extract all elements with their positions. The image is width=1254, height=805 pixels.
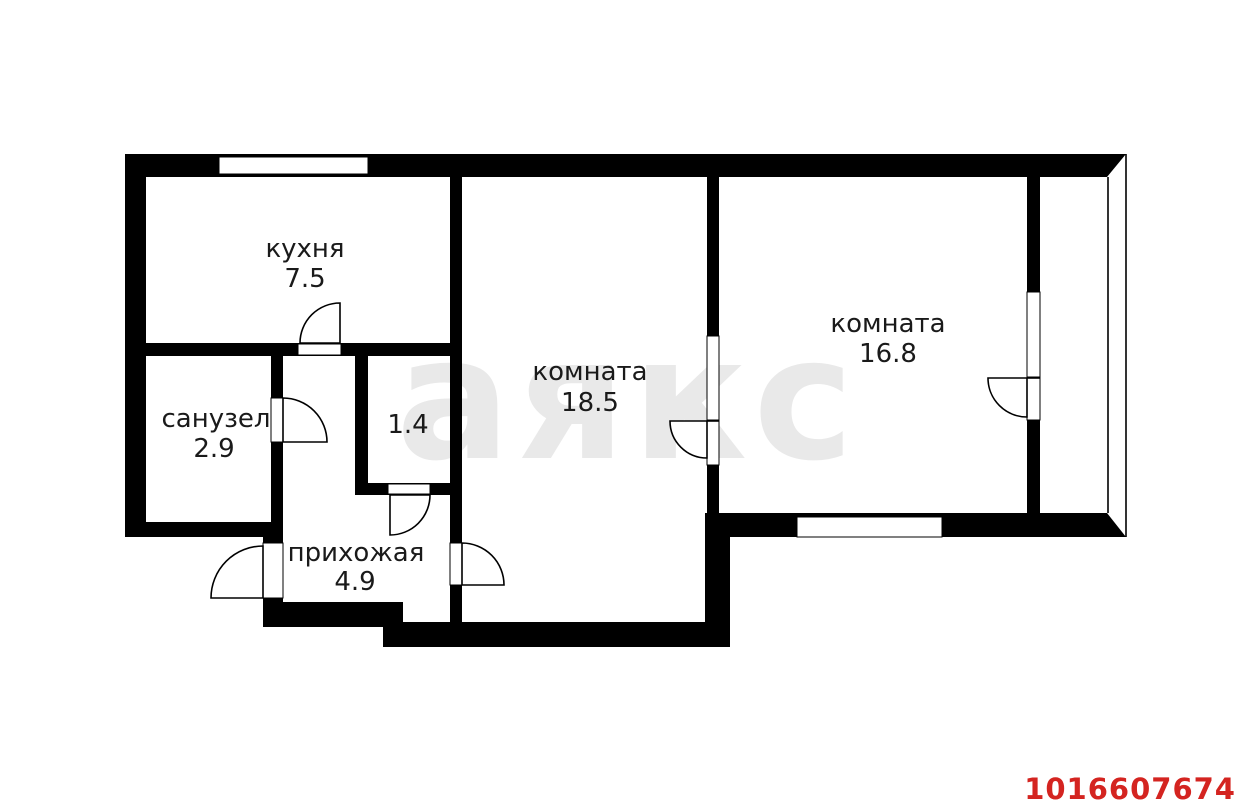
wall-left xyxy=(125,154,146,537)
balcony-railing xyxy=(1108,154,1126,537)
entry-door-gap xyxy=(263,543,283,598)
hall-room1-door-arc xyxy=(462,543,504,585)
hall-room1-door-gap xyxy=(450,543,462,585)
closet-area: 1.4 xyxy=(387,410,428,440)
kitchen-door-gap xyxy=(298,344,341,355)
room2-label: комната xyxy=(830,309,945,339)
floor-plan-svg: аякс xyxy=(0,0,1254,805)
kitchen-door-arc xyxy=(300,303,340,343)
watermark-logo: аякс xyxy=(396,301,860,499)
wall-closet-left xyxy=(355,343,368,495)
kitchen-area: 7.5 xyxy=(284,264,325,294)
room1-label: комната xyxy=(532,357,647,387)
floor-plan-page: аякс xyxy=(0,0,1254,805)
rooms-partition-door-gap xyxy=(707,420,719,465)
wall-top-chamfer xyxy=(1107,154,1126,177)
kitchen-label: кухня xyxy=(265,234,344,264)
room2-bottom-window xyxy=(797,517,942,537)
wall-room1-bottom xyxy=(450,622,730,647)
closet-door-arc xyxy=(390,495,430,535)
bathroom-door-gap xyxy=(271,398,283,442)
closet-door-gap xyxy=(388,484,430,494)
listing-id: 1016607674 xyxy=(1024,772,1236,805)
room2-area: 16.8 xyxy=(859,339,917,369)
bathroom-area: 2.9 xyxy=(193,434,234,464)
hallway-label: прихожая xyxy=(288,538,425,568)
bathroom-door-arc xyxy=(283,398,327,442)
wall-hall-bottom xyxy=(263,602,403,627)
room2-balcony-window xyxy=(1027,292,1040,377)
room2-balcony-door-arc xyxy=(988,378,1027,417)
wall-bathroom-bottom xyxy=(125,522,283,537)
entry-door-arc xyxy=(211,546,263,598)
room1-area: 18.5 xyxy=(561,388,619,418)
hallway-area: 4.9 xyxy=(334,567,375,597)
wall-bottom-chamfer xyxy=(1107,513,1126,537)
rooms-partition-window xyxy=(707,336,719,420)
room2-balcony-door-gap xyxy=(1027,378,1040,420)
kitchen-window xyxy=(219,157,368,174)
bathroom-label: санузел xyxy=(161,404,270,434)
